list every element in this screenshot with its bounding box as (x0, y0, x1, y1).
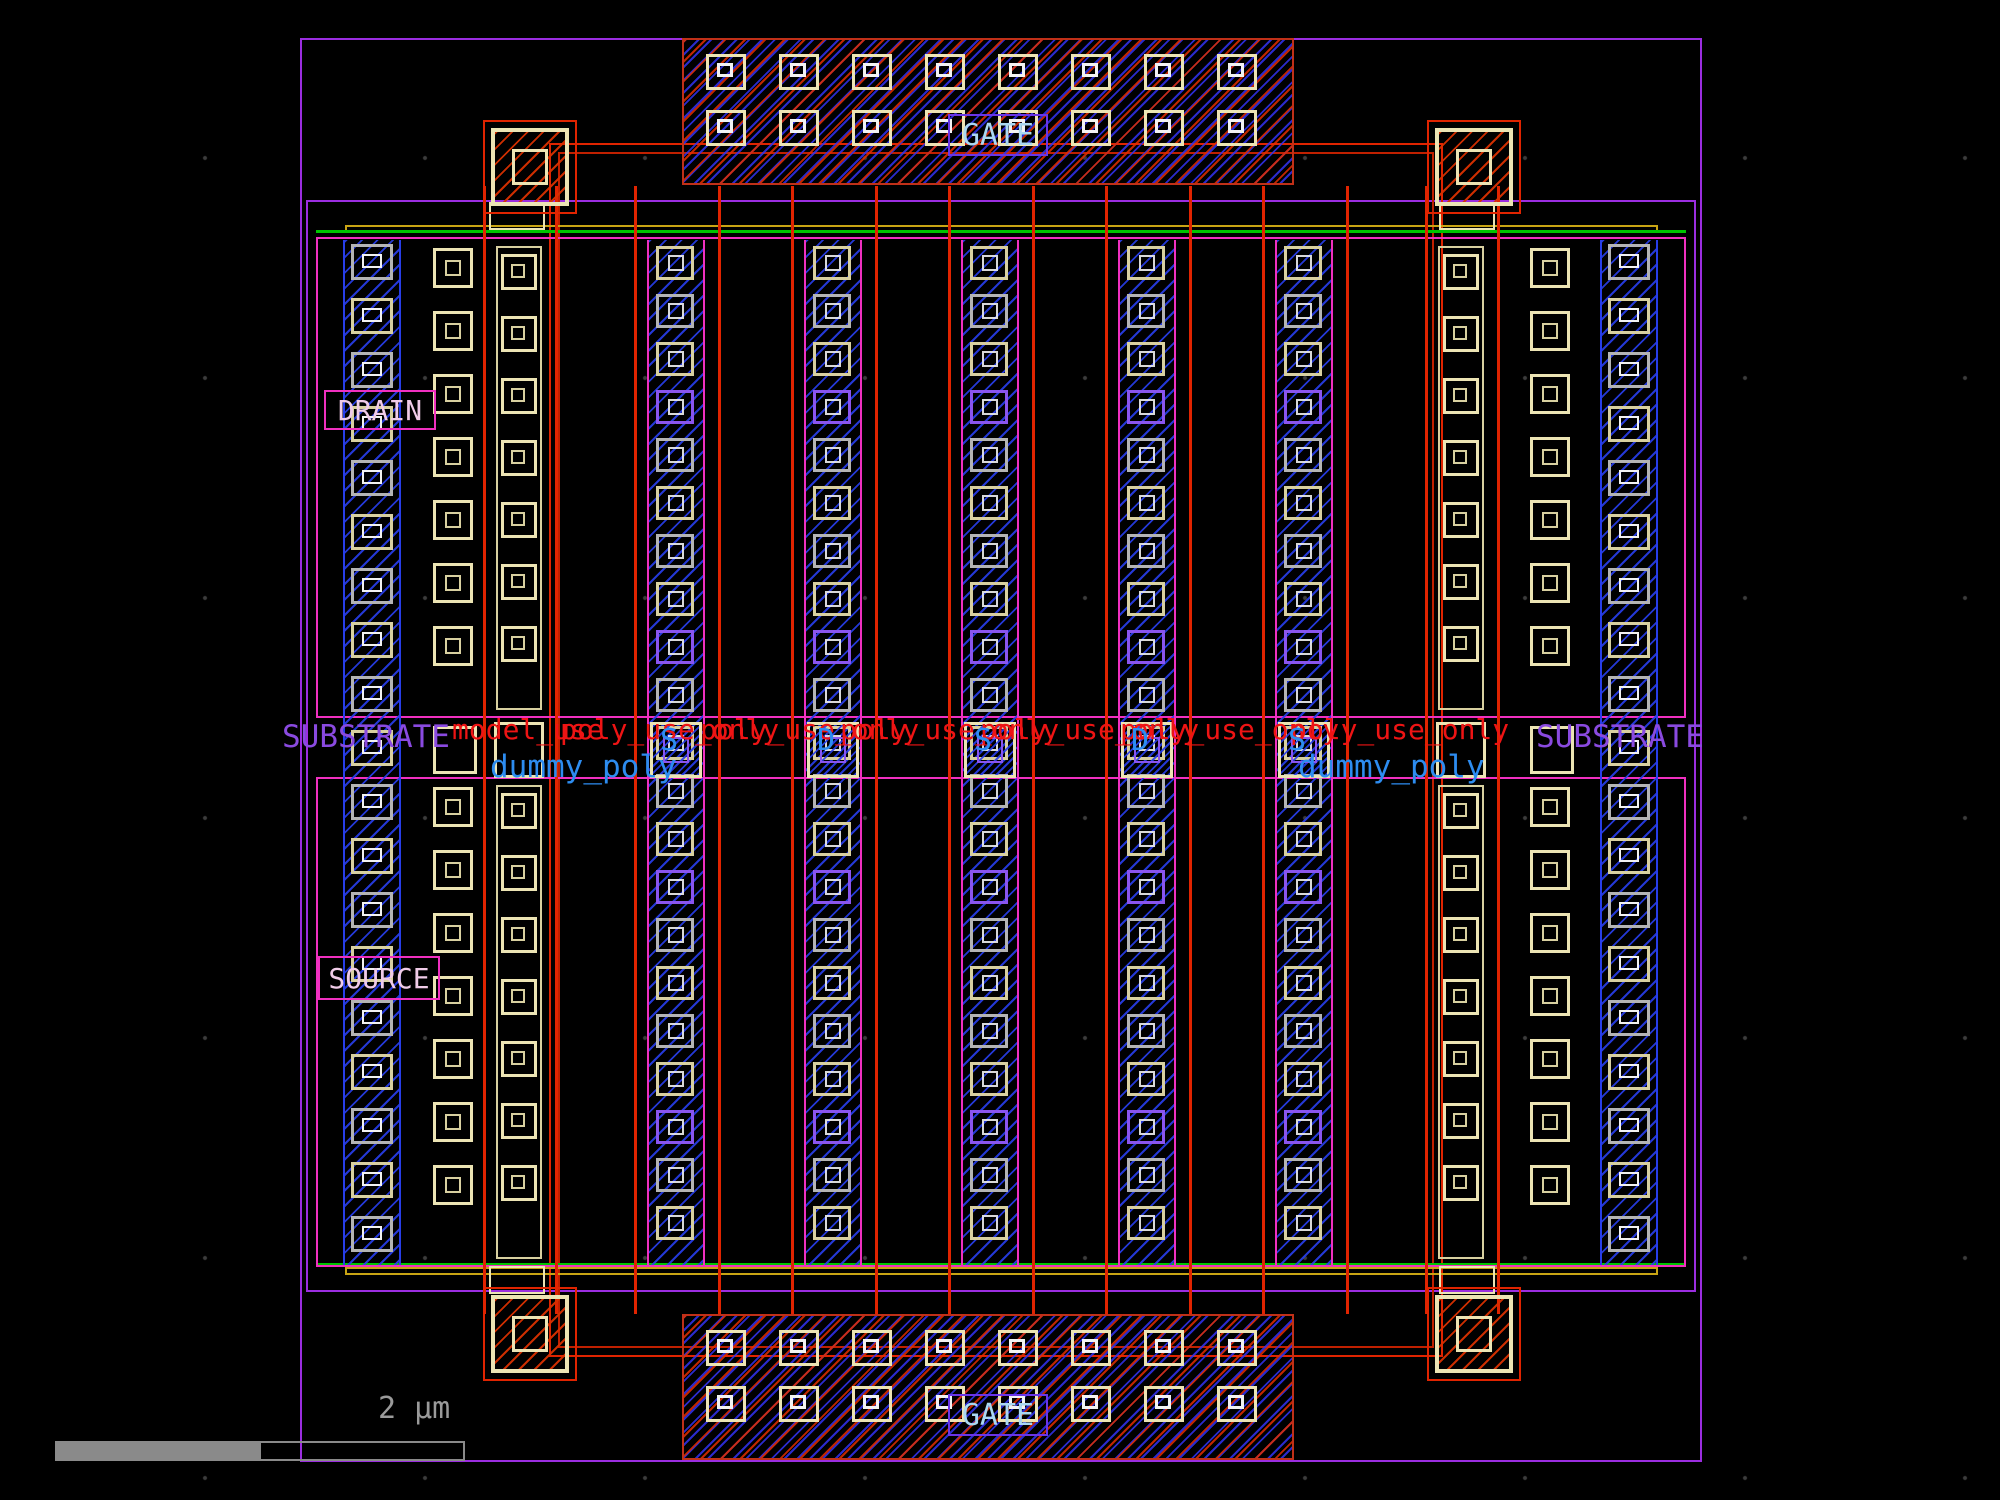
poly-contact-square (1443, 626, 1479, 662)
contact-cut (982, 591, 998, 607)
contact-cut (511, 264, 525, 278)
via-square (656, 390, 694, 424)
contact-cut (1453, 450, 1467, 464)
via-square (970, 822, 1008, 856)
contact-cut (1296, 639, 1312, 655)
via-square (1284, 1110, 1322, 1144)
via-square (656, 630, 694, 664)
via-square (813, 390, 851, 424)
contact-cut (982, 831, 998, 847)
contact-cut (982, 1071, 998, 1087)
substrate-via-square (351, 514, 393, 550)
substrate-via-square (1608, 676, 1650, 712)
via-square (813, 1062, 851, 1096)
scale-bar-outline (259, 1441, 465, 1461)
poly-contact-square (501, 917, 537, 953)
poly-contact-square (1443, 979, 1479, 1015)
via-square (970, 582, 1008, 616)
contact-cut (982, 1119, 998, 1135)
contact-cut (1296, 303, 1312, 319)
layout-canvas[interactable]: GATE GATE DRAIN SOURCE SUBSTRATE SUBSTRA… (0, 0, 2000, 1500)
contact-cut (512, 1316, 548, 1352)
contact-cut (825, 1119, 841, 1135)
via-square (1284, 390, 1322, 424)
drain-pin-label: DRAIN (324, 390, 436, 430)
contact-cut (362, 362, 382, 376)
via-square (656, 582, 694, 616)
contact-cut (1453, 927, 1467, 941)
contact-cut (982, 1215, 998, 1231)
contact-cut (825, 303, 841, 319)
via-square (970, 678, 1008, 712)
via-square (1284, 438, 1322, 472)
contact-cut (825, 495, 841, 511)
scale-bar (55, 1441, 465, 1461)
poly-contact-square (501, 378, 537, 414)
via-square (1127, 678, 1165, 712)
substrate-via-square (1608, 622, 1650, 658)
substrate-via-square (351, 460, 393, 496)
finger-net-letter: D (817, 726, 835, 756)
poly-contact-square (1443, 1165, 1479, 1201)
contact-cut (825, 447, 841, 463)
contact-cut (825, 399, 841, 415)
substrate-via-square (351, 298, 393, 334)
via-square (813, 1206, 851, 1240)
contact-cut (1619, 956, 1639, 970)
via-square (813, 822, 851, 856)
via-square (813, 630, 851, 664)
contact-cut (1139, 351, 1155, 367)
contact-cut (982, 399, 998, 415)
via-square (813, 678, 851, 712)
via-square (656, 1110, 694, 1144)
poly-contact-square (1443, 254, 1479, 290)
via-square (970, 534, 1008, 568)
contact-cut (982, 495, 998, 511)
substrate-via-square (1608, 298, 1650, 334)
via-square (1127, 966, 1165, 1000)
via-square (1284, 918, 1322, 952)
contact-cut (1453, 1051, 1467, 1065)
contact-cut (668, 543, 684, 559)
poly-contact-square (501, 793, 537, 829)
contact-cut (1619, 1226, 1639, 1240)
substrate-label-right: SUBSTRATE (1536, 722, 1704, 753)
contact-cut (1296, 255, 1312, 271)
via-square (1127, 1206, 1165, 1240)
via-square (1127, 1062, 1165, 1096)
via-square (1284, 486, 1322, 520)
contact-cut (982, 879, 998, 895)
contact-cut (1139, 303, 1155, 319)
contact-cut (825, 255, 841, 271)
via-square (656, 1062, 694, 1096)
corner-tap-contact (1435, 1295, 1513, 1373)
contact-cut (982, 687, 998, 703)
substrate-via-square (351, 1054, 393, 1090)
via-square (970, 870, 1008, 904)
contact-cut (511, 1113, 525, 1127)
contact-cut (668, 1023, 684, 1039)
via-square (1284, 966, 1322, 1000)
contact-cut (362, 686, 382, 700)
contact-cut (1139, 1215, 1155, 1231)
contact-cut (1296, 783, 1312, 799)
contact-cut (668, 447, 684, 463)
contact-cut (511, 512, 525, 526)
contact-cut (1619, 416, 1639, 430)
dummy-poly-strip (496, 246, 542, 710)
contact-cut (825, 783, 841, 799)
contact-cut (1296, 495, 1312, 511)
contact-cut (1619, 794, 1639, 808)
contact-cut (825, 879, 841, 895)
contact-cut (1296, 399, 1312, 415)
dummy-poly-strip (1438, 785, 1484, 1259)
contact-cut (825, 1023, 841, 1039)
contact-cut (1453, 1175, 1467, 1189)
contact-cut (511, 989, 525, 1003)
contact-cut (1619, 902, 1639, 916)
contact-cut (1453, 1113, 1467, 1127)
poly-contact-square (501, 626, 537, 662)
contact-cut (1296, 1215, 1312, 1231)
contact-cut (362, 578, 382, 592)
contact-cut (1139, 975, 1155, 991)
via-square (656, 1014, 694, 1048)
contact-cut (668, 399, 684, 415)
via-square (656, 870, 694, 904)
contact-cut (1296, 1023, 1312, 1039)
substrate-via-square (351, 784, 393, 820)
substrate-via-square (351, 352, 393, 388)
contact-cut (1296, 687, 1312, 703)
via-square (970, 1158, 1008, 1192)
via-square (970, 774, 1008, 808)
via-square (970, 246, 1008, 280)
contact-cut (1139, 255, 1155, 271)
poly-gate-line (1497, 186, 1500, 1314)
contact-cut (362, 794, 382, 808)
via-square (1284, 1014, 1322, 1048)
contact-cut (1619, 686, 1639, 700)
substrate-via-square (1608, 946, 1650, 982)
contact-cut (1453, 388, 1467, 402)
via-square (1127, 294, 1165, 328)
poly-contact-square (1443, 564, 1479, 600)
poly-gate-line (1105, 186, 1108, 1314)
via-square (1127, 390, 1165, 424)
via-square (1284, 1062, 1322, 1096)
poly-contact-square (1443, 316, 1479, 352)
contact-cut (362, 632, 382, 646)
contact-cut (1453, 264, 1467, 278)
via-square (970, 1062, 1008, 1096)
poly-contact-square (501, 1041, 537, 1077)
finger-net-letter: S (660, 726, 678, 756)
contact-cut (511, 450, 525, 464)
via-square (1284, 342, 1322, 376)
contact-cut (825, 1215, 841, 1231)
via-square (656, 918, 694, 952)
contact-cut (1296, 1071, 1312, 1087)
via-square (656, 294, 694, 328)
via-square (656, 438, 694, 472)
poly-gate-line (483, 186, 486, 1314)
via-square (813, 534, 851, 568)
dummy-poly-strip (1438, 246, 1484, 710)
contact-cut (668, 783, 684, 799)
via-square (813, 918, 851, 952)
contact-cut (825, 543, 841, 559)
via-square (813, 342, 851, 376)
contact-cut (1139, 447, 1155, 463)
contact-cut (982, 543, 998, 559)
via-square (813, 246, 851, 280)
contact-cut (1296, 447, 1312, 463)
substrate-via-square (1608, 838, 1650, 874)
contact-cut (668, 591, 684, 607)
contact-cut (1619, 524, 1639, 538)
poly-gate-line (1189, 186, 1192, 1314)
substrate-via-square (1608, 568, 1650, 604)
poly-gate-line (875, 186, 878, 1314)
via-square (970, 1110, 1008, 1144)
via-square (813, 486, 851, 520)
contact-cut (1619, 470, 1639, 484)
substrate-via-square (351, 1162, 393, 1198)
via-square (1127, 630, 1165, 664)
contact-cut (1139, 639, 1155, 655)
contact-cut (668, 975, 684, 991)
dummy-poly-strip (496, 785, 542, 1259)
substrate-via-square (1608, 514, 1650, 550)
scale-bar-fill (55, 1441, 261, 1461)
contact-cut (668, 1119, 684, 1135)
via-square (656, 1206, 694, 1240)
contact-cut (1139, 687, 1155, 703)
contact-cut (362, 902, 382, 916)
scale-bar-text: 2 µm (378, 1394, 450, 1424)
contact-cut (362, 254, 382, 268)
contact-cut (982, 351, 998, 367)
contact-cut (1139, 1023, 1155, 1039)
poly-gate-line (718, 186, 721, 1314)
via-square (970, 342, 1008, 376)
poly-contact-square (1443, 1103, 1479, 1139)
via-square (970, 966, 1008, 1000)
via-square (1284, 870, 1322, 904)
via-square (656, 966, 694, 1000)
contact-cut (825, 975, 841, 991)
via-square (1127, 774, 1165, 808)
contact-cut (1139, 927, 1155, 943)
poly-contact-square (1443, 917, 1479, 953)
via-square (1127, 246, 1165, 280)
contact-cut (668, 831, 684, 847)
via-square (813, 582, 851, 616)
contact-cut (362, 470, 382, 484)
finger-net-letter: S (974, 726, 992, 756)
via-square (970, 630, 1008, 664)
via-square (970, 486, 1008, 520)
substrate-via-square (351, 1216, 393, 1252)
poly-gate-line (1032, 186, 1035, 1314)
contact-cut (1296, 1167, 1312, 1183)
contact-cut (1619, 1064, 1639, 1078)
contact-cut (362, 1118, 382, 1132)
via-square (1127, 438, 1165, 472)
substrate-via-square (351, 1000, 393, 1036)
contact-cut (1619, 254, 1639, 268)
contact-cut (668, 255, 684, 271)
via-square (813, 1110, 851, 1144)
via-square (1127, 1110, 1165, 1144)
via-square (656, 678, 694, 712)
via-square (1127, 870, 1165, 904)
contact-cut (825, 687, 841, 703)
contact-cut (825, 1167, 841, 1183)
source-pin-label: SOURCE (318, 956, 440, 1000)
dummy-poly-label-left: dummy_poly (490, 752, 677, 783)
corner-tap-contact (491, 128, 569, 206)
contact-cut (1619, 578, 1639, 592)
poly-use-net-text: poly_use_only (1290, 716, 1509, 744)
contact-cut (362, 1010, 382, 1024)
poly-contact-square (1443, 793, 1479, 829)
contact-cut (1619, 1118, 1639, 1132)
contact-cut (1139, 495, 1155, 511)
contact-cut (982, 1023, 998, 1039)
corner-tap-contact (1435, 128, 1513, 206)
contact-cut (825, 351, 841, 367)
contact-cut (825, 1071, 841, 1087)
substrate-via-square (351, 838, 393, 874)
poly-gate-line (791, 186, 794, 1314)
contact-cut (511, 927, 525, 941)
contact-cut (1139, 1167, 1155, 1183)
via-square (656, 534, 694, 568)
contact-cut (668, 687, 684, 703)
contact-cut (825, 927, 841, 943)
substrate-via-square (1608, 892, 1650, 928)
via-square (1127, 1014, 1165, 1048)
poly-contact-square (501, 855, 537, 891)
contact-cut (362, 848, 382, 862)
contact-cut (668, 927, 684, 943)
contact-cut (362, 1226, 382, 1240)
contact-cut (511, 1051, 525, 1065)
via-square (970, 1206, 1008, 1240)
substrate-via-square (1608, 406, 1650, 442)
contact-cut (1453, 989, 1467, 1003)
contact-cut (511, 1175, 525, 1189)
substrate-via-square (351, 622, 393, 658)
contact-cut (825, 639, 841, 655)
contact-cut (1619, 1010, 1639, 1024)
substrate-via-square (351, 676, 393, 712)
poly-contact-square (501, 564, 537, 600)
contact-cut (982, 975, 998, 991)
contact-cut (1619, 848, 1639, 862)
via-square (1284, 246, 1322, 280)
contact-cut (668, 303, 684, 319)
contact-cut (511, 574, 525, 588)
contact-cut (982, 255, 998, 271)
finger-net-letter: S (1288, 726, 1306, 756)
contact-cut (1139, 1119, 1155, 1135)
via-square (656, 342, 694, 376)
contact-cut (1296, 591, 1312, 607)
substrate-via-square (351, 244, 393, 280)
substrate-via-square (1608, 1000, 1650, 1036)
contact-cut (1619, 1172, 1639, 1186)
via-square (813, 1014, 851, 1048)
contact-cut (511, 803, 525, 817)
poly-contact-square (501, 979, 537, 1015)
via-square (1127, 486, 1165, 520)
contact-cut (1619, 362, 1639, 376)
contact-cut (511, 326, 525, 340)
via-square (656, 246, 694, 280)
contact-cut (1619, 632, 1639, 646)
substrate-via-square (1608, 1054, 1650, 1090)
via-square (970, 1014, 1008, 1048)
poly-contact-square (1443, 378, 1479, 414)
contact-cut (1453, 512, 1467, 526)
contact-cut (1296, 975, 1312, 991)
contact-cut (1139, 543, 1155, 559)
substrate-via-square (1608, 1216, 1650, 1252)
poly-gate-line (948, 186, 951, 1314)
contact-cut (362, 308, 382, 322)
contact-cut (1139, 783, 1155, 799)
contact-cut (1453, 803, 1467, 817)
contact-cut (668, 1167, 684, 1183)
contact-cut (1619, 308, 1639, 322)
finger-net-letter: D (1131, 726, 1149, 756)
contact-cut (511, 388, 525, 402)
gate-label-bottom: GATE (948, 1394, 1048, 1436)
contact-cut (982, 927, 998, 943)
via-square (1127, 1158, 1165, 1192)
via-square (1284, 822, 1322, 856)
contact-cut (1139, 1071, 1155, 1087)
substrate-via-square (351, 892, 393, 928)
dummy-poly-label-right: dummy_poly (1298, 752, 1485, 783)
contact-cut (1296, 927, 1312, 943)
contact-cut (982, 639, 998, 655)
contact-cut (1453, 865, 1467, 879)
via-square (813, 294, 851, 328)
contact-cut (982, 447, 998, 463)
contact-cut (982, 783, 998, 799)
via-square (1284, 678, 1322, 712)
via-square (813, 438, 851, 472)
contact-cut (825, 591, 841, 607)
contact-cut (362, 1064, 382, 1078)
poly-contact-square (501, 502, 537, 538)
via-square (656, 486, 694, 520)
via-square (1284, 1158, 1322, 1192)
via-square (1284, 582, 1322, 616)
contact-cut (1139, 831, 1155, 847)
contact-cut (362, 524, 382, 538)
contact-cut (1453, 574, 1467, 588)
poly-contact-square (501, 440, 537, 476)
contact-cut (1139, 879, 1155, 895)
